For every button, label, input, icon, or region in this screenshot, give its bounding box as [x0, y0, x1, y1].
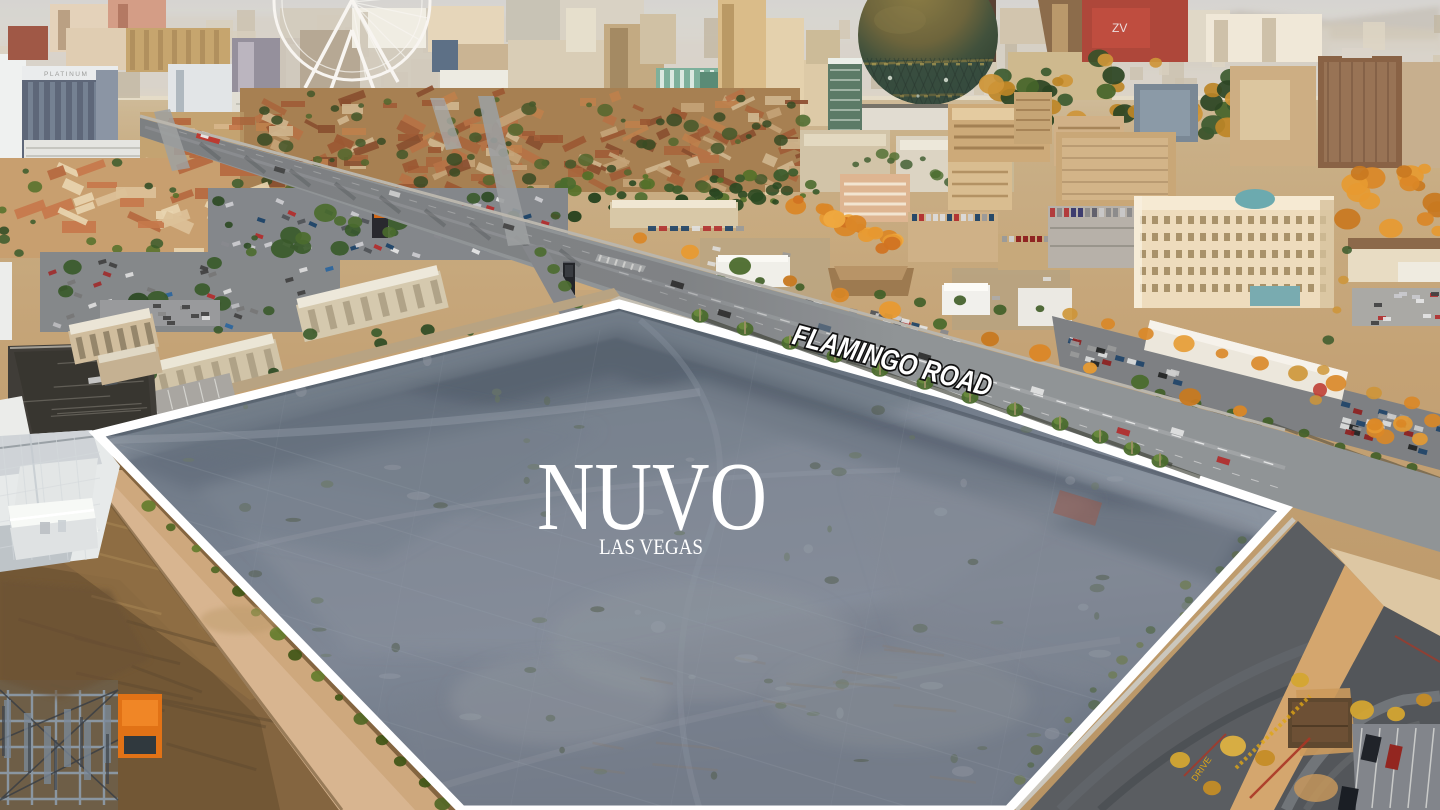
svg-text:LAS VEGAS: LAS VEGAS	[599, 534, 703, 559]
svg-text:PLATINUM: PLATINUM	[44, 71, 88, 78]
svg-text:ZV: ZV	[1112, 21, 1127, 35]
